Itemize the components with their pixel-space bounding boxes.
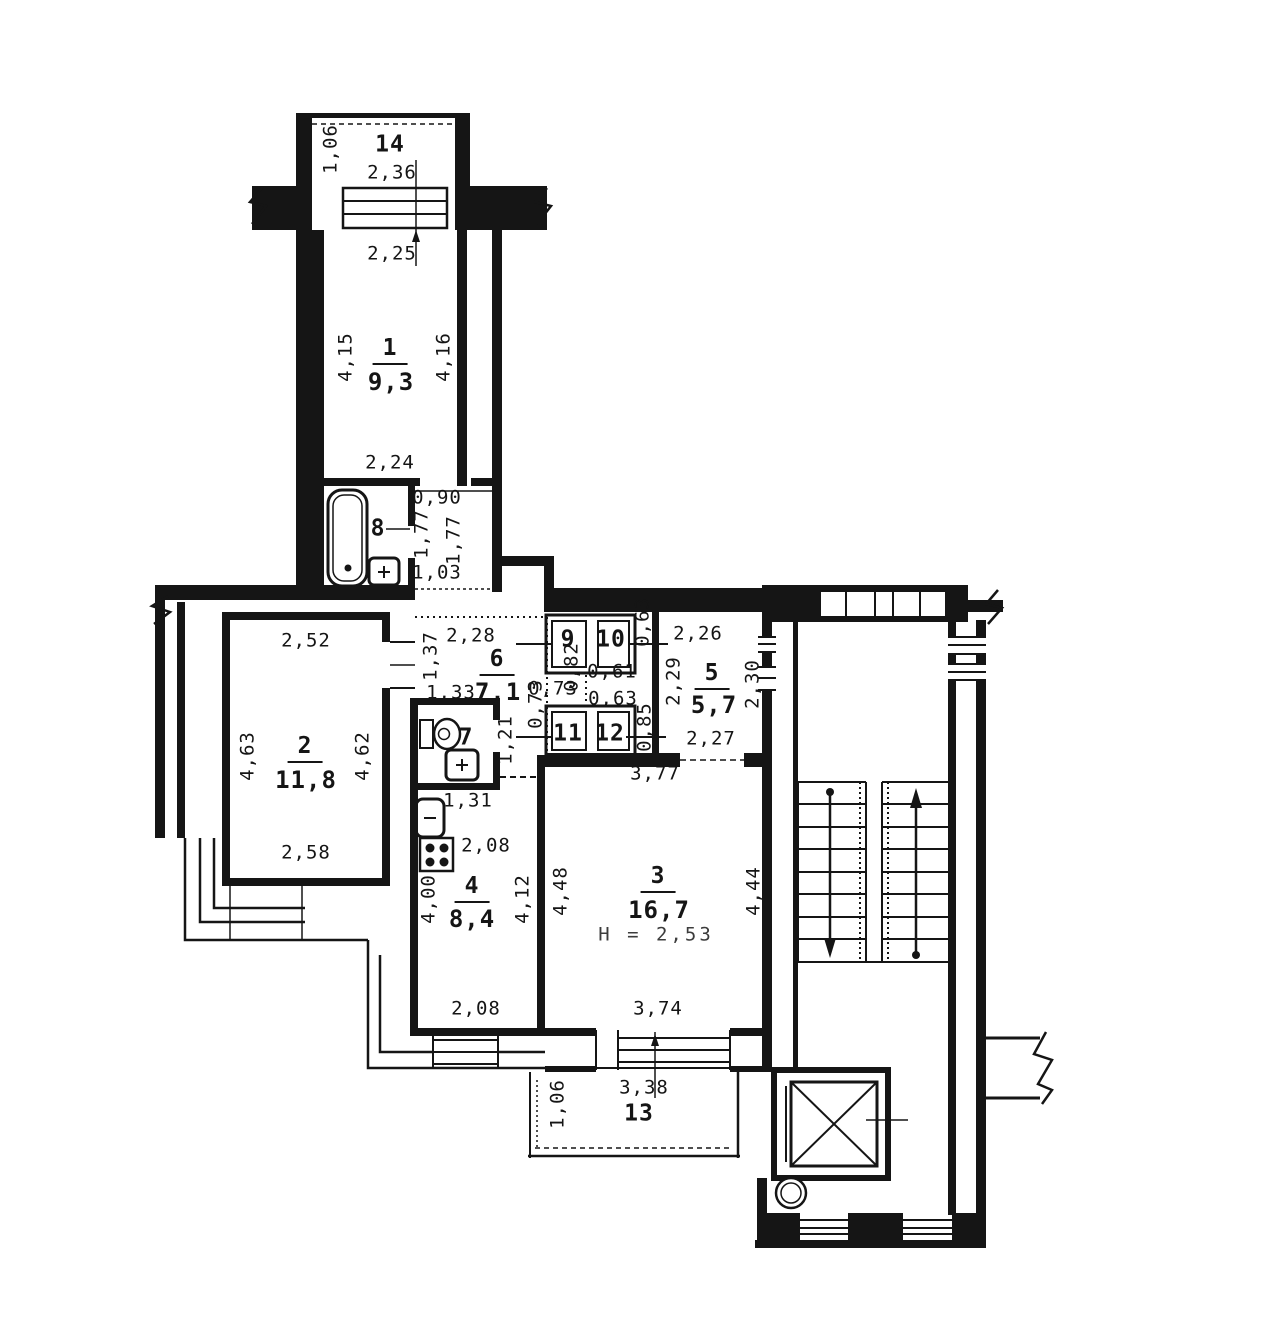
floor-plan-drawing — [0, 0, 1267, 1325]
kitchen-walls — [410, 1028, 545, 1036]
closet-11-12 — [516, 706, 666, 756]
stair-arrow-up — [910, 788, 922, 959]
balcony-door-and-window-room-3 — [596, 1030, 730, 1098]
wc-sink-icon — [446, 750, 478, 780]
elevator-shaft — [774, 1070, 908, 1178]
closet-9-10 — [516, 615, 668, 673]
floor-plan-page: 1,06142,362,254,1519,34,162,240,901,771,… — [0, 0, 1267, 1325]
toilet-icon — [420, 719, 460, 749]
bathroom-sink-icon — [369, 558, 399, 585]
hall-upper-segment — [415, 491, 492, 589]
room-2-walls — [222, 612, 390, 886]
kitchen-sink-icon — [416, 799, 444, 837]
staircase — [798, 782, 950, 962]
bathroom-8-walls — [408, 486, 415, 592]
room-2-door-opening — [390, 642, 415, 688]
break-symbol — [152, 596, 170, 624]
bathtub-icon — [328, 490, 367, 586]
balcony-door-window — [343, 160, 447, 266]
garbage-chute-icon — [776, 1178, 806, 1208]
exterior-wall-left — [155, 556, 554, 838]
stove-icon — [420, 838, 453, 871]
kitchen-window — [433, 1036, 498, 1068]
elevator-x-icon — [791, 1082, 877, 1166]
balcony-13 — [528, 1072, 740, 1158]
stair-block-top-windows — [820, 588, 946, 622]
right-side-jog — [986, 1032, 1052, 1104]
hall-6-boundaries — [415, 617, 586, 756]
balcony-14 — [296, 113, 470, 188]
